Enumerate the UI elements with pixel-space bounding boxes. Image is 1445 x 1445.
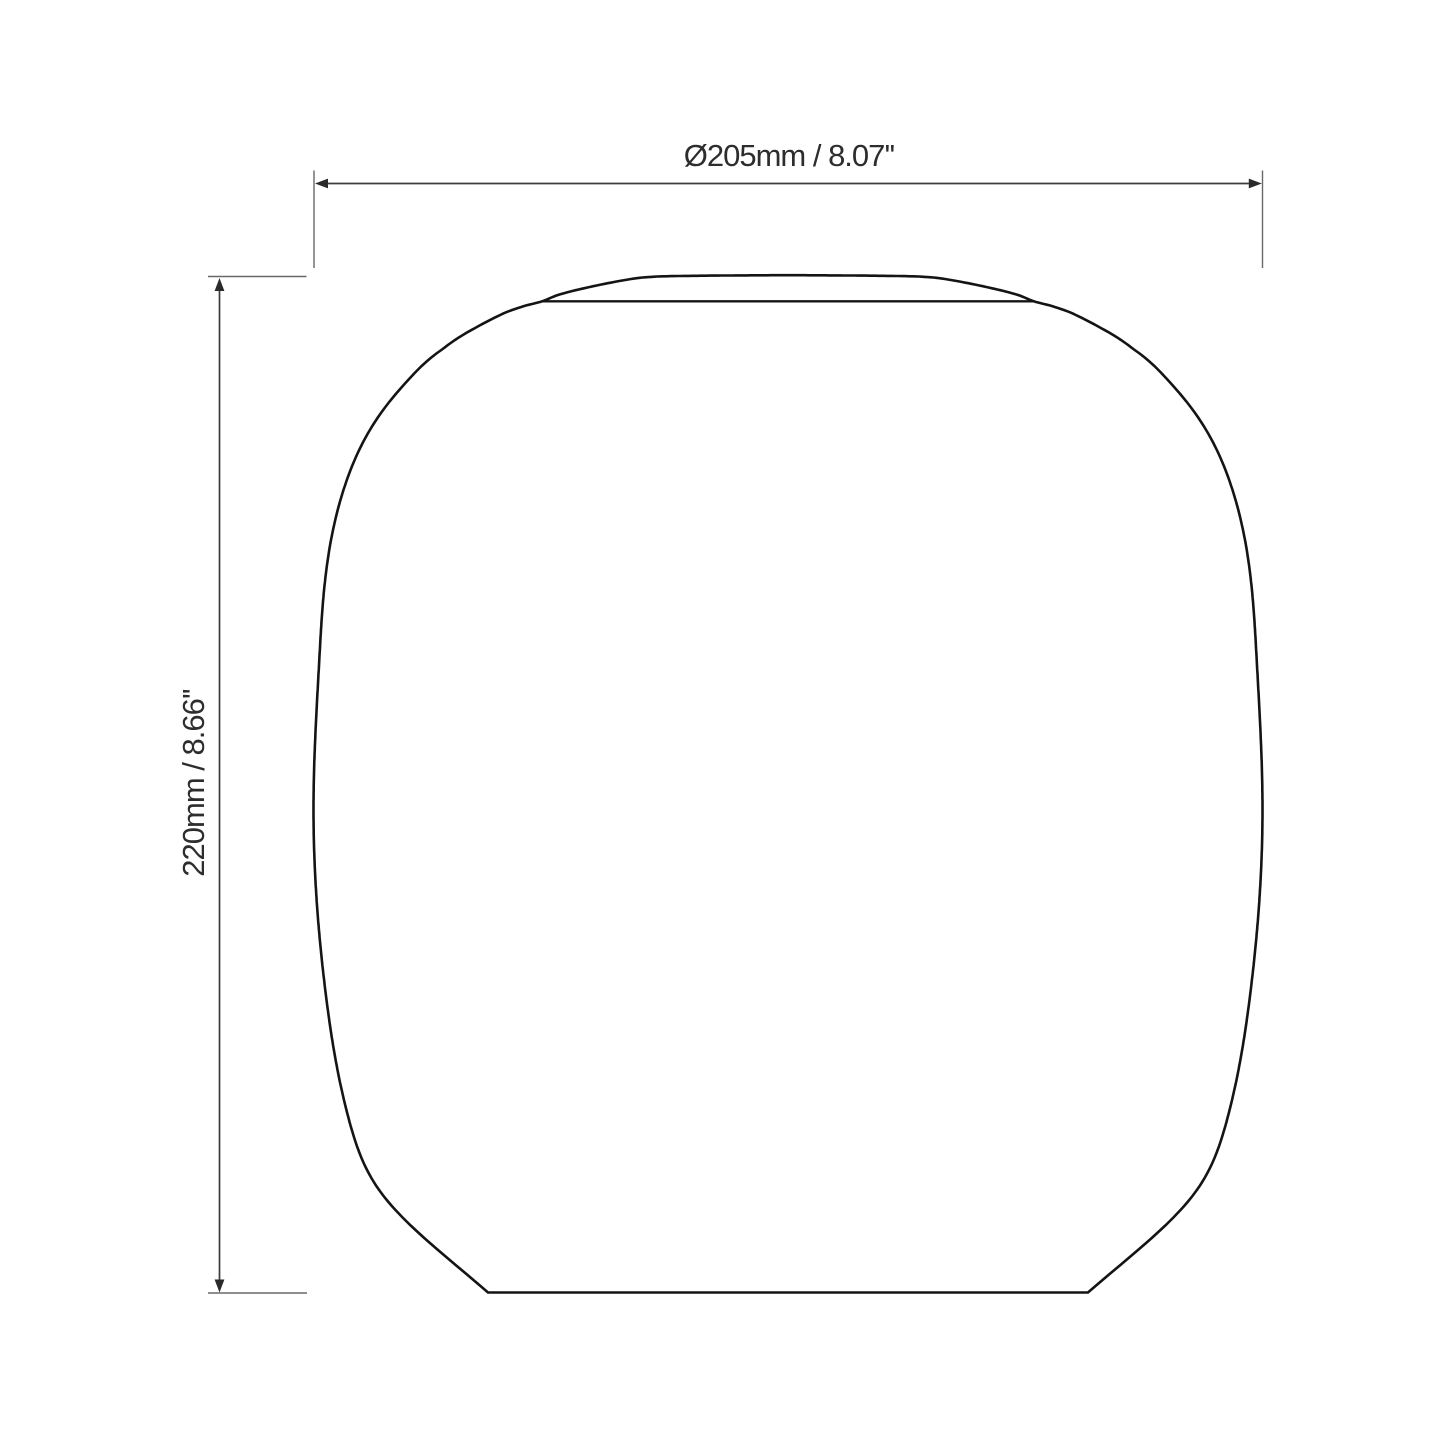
svg-text:Ø205mm / 8.07'': Ø205mm / 8.07''	[684, 138, 895, 173]
svg-text:220mm / 8.66'': 220mm / 8.66''	[176, 689, 211, 876]
